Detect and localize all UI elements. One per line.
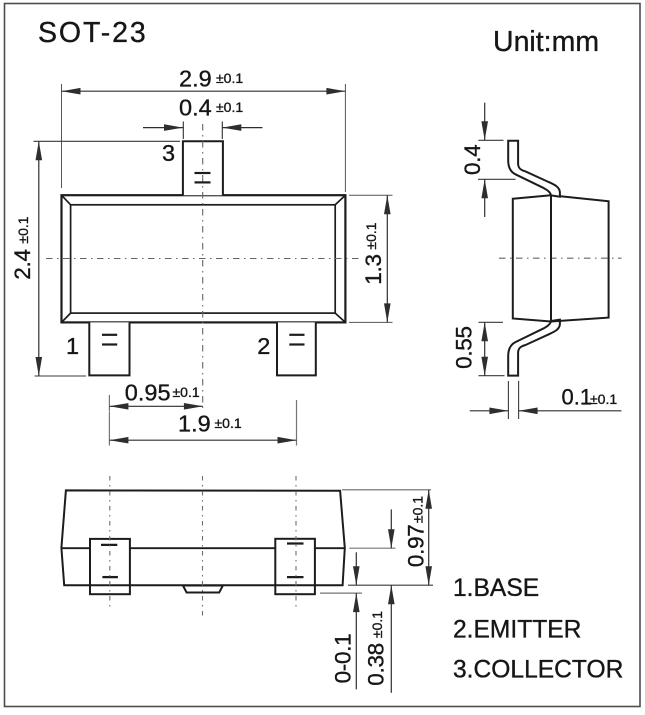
svg-text:0.1: 0.1 <box>562 385 593 410</box>
svg-text:2.EMITTER: 2.EMITTER <box>453 617 581 644</box>
svg-text:1: 1 <box>66 333 79 359</box>
svg-text:0.55: 0.55 <box>452 326 477 369</box>
svg-text:±0.1: ±0.1 <box>173 384 200 400</box>
svg-text:0.97: 0.97 <box>404 525 429 568</box>
svg-text:±0.1: ±0.1 <box>216 70 243 86</box>
svg-text:±0.1: ±0.1 <box>409 496 425 523</box>
svg-text:SOT-23: SOT-23 <box>38 17 148 49</box>
svg-text:1.9: 1.9 <box>178 411 211 437</box>
svg-text:2: 2 <box>257 333 270 359</box>
svg-text:Unit:mm: Unit:mm <box>493 26 599 58</box>
svg-text:±0.1: ±0.1 <box>216 99 243 115</box>
svg-text:±0.1: ±0.1 <box>15 216 31 243</box>
svg-text:±0.1: ±0.1 <box>590 391 617 407</box>
svg-text:0-0.1: 0-0.1 <box>330 634 355 684</box>
svg-text:0.4: 0.4 <box>460 145 485 175</box>
svg-text:0.4: 0.4 <box>179 95 212 121</box>
svg-text:±0.1: ±0.1 <box>363 222 379 249</box>
svg-text:±0.1: ±0.1 <box>215 415 242 431</box>
svg-text:±0.1: ±0.1 <box>369 611 385 638</box>
svg-text:0.38: 0.38 <box>363 643 388 686</box>
svg-text:1.BASE: 1.BASE <box>453 575 539 602</box>
svg-text:2.9: 2.9 <box>179 66 212 92</box>
svg-text:0.95: 0.95 <box>125 379 171 405</box>
svg-text:1.3: 1.3 <box>361 254 386 284</box>
svg-text:2.4: 2.4 <box>10 249 35 279</box>
svg-text:3.COLLECTOR: 3.COLLECTOR <box>453 657 623 684</box>
svg-text:3: 3 <box>162 140 175 166</box>
